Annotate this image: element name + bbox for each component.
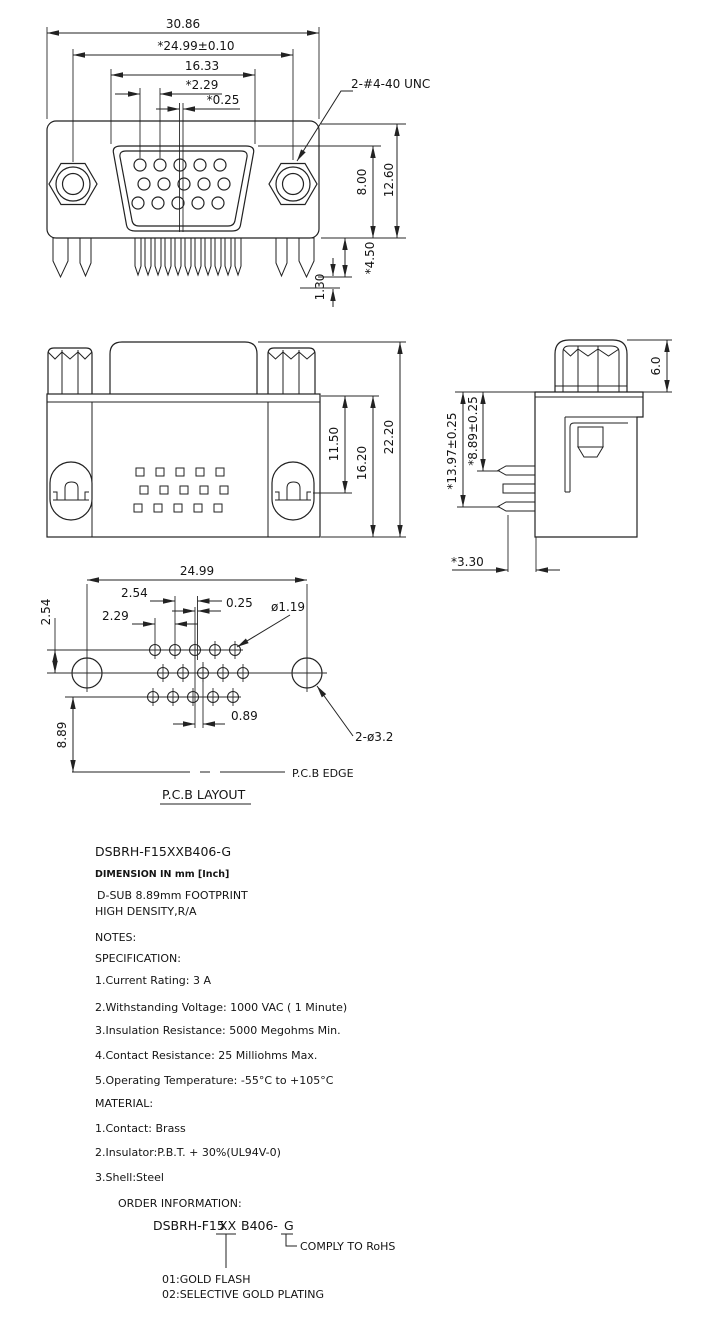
dim-body-height: 16.20: [355, 446, 369, 480]
order-part-suffix: B406-: [241, 1218, 278, 1233]
contact-holes: [132, 159, 230, 209]
dim-footprint-depth: *8.89±0.25: [466, 396, 480, 466]
side-standoff: [555, 340, 627, 392]
dim-pcb-pin-pitch: 2.29: [102, 609, 129, 623]
standoff-left: [48, 348, 92, 394]
solder-pins: [135, 238, 241, 275]
rear-body: [47, 394, 320, 537]
order-part-rohs-code: G: [284, 1218, 294, 1233]
description-line1: D-SUB 8.89mm FOOTPRINT: [97, 889, 248, 902]
dim-pin-length: *4.50: [363, 242, 377, 275]
dim-pcb-col-spacing: 2.54: [121, 586, 148, 600]
bracket-legs: [53, 238, 314, 277]
standoff-right: [268, 348, 315, 394]
front-view: 30.86 *24.99±0.10 16.33 *2.29 *0.25 2-#4…: [47, 17, 430, 307]
spec-line: 1.Current Rating: 3 A: [95, 974, 211, 987]
drawing-sheet: 30.86 *24.99±0.10 16.33 *2.29 *0.25 2-#4…: [0, 0, 705, 1326]
order-part-plating-code: XX: [219, 1218, 237, 1233]
dim-pcb-hole-dia: ø1.19: [271, 600, 305, 614]
pcb-layout: 24.99 2.54 2.54 0.25 2.29 ø1.19 0.89 8.8…: [39, 564, 393, 804]
notes-label: NOTES:: [95, 931, 136, 944]
dim-standoff-height: 6.0: [649, 356, 663, 375]
dimension-note: DIMENSION IN mm [Inch]: [95, 869, 229, 880]
dim-rear-overall-height: 22.20: [382, 420, 396, 454]
spec-line: 4.Contact Resistance: 25 Milliohms Max.: [95, 1049, 317, 1062]
notes-block: DSBRH-F15XXB406-G DIMENSION IN mm [Inch]…: [95, 844, 347, 1184]
rear-view: 11.50 16.20 22.20: [47, 342, 406, 537]
dim-pcb-edge-distance: 8.89: [55, 722, 69, 749]
order-part-prefix: DSBRH-F15: [153, 1218, 225, 1233]
spec-line: 5.Operating Temperature: -55°C to +105°C: [95, 1074, 334, 1087]
spec-line: 3.Insulation Resistance: 5000 Megohms Mi…: [95, 1024, 341, 1037]
dim-pcb-mid-offset: 0.89: [231, 709, 258, 723]
dim-pcb-mount-hole: 2-ø3.2: [355, 730, 393, 744]
dim-total-depth: *13.97±0.25: [445, 412, 459, 489]
thread-callout: 2-#4-40 UNC: [351, 77, 430, 91]
side-pins: [498, 466, 535, 511]
pcb-pin-holes: [148, 641, 249, 706]
d-shroud: [113, 146, 253, 231]
dim-pcb-center-offset: 0.25: [226, 596, 253, 610]
dim-inner-height: 11.50: [327, 427, 341, 461]
order-leader-lines: [216, 1234, 297, 1268]
material-line: 1.Contact: Brass: [95, 1122, 186, 1135]
dim-pcb-mount-span: 24.99: [180, 564, 214, 578]
specification-label: SPECIFICATION:: [95, 952, 181, 965]
dim-pcb-row-spacing: 2.54: [39, 599, 53, 626]
side-view: 6.0 *13.97±0.25 *8.89±0.25 *3.30: [445, 340, 672, 572]
plating-option: 01:GOLD FLASH: [162, 1273, 250, 1286]
pcb-row-lines: [47, 650, 327, 697]
order-info-label: ORDER INFORMATION:: [118, 1197, 242, 1210]
dim-pin-tip: 1.30: [313, 274, 327, 301]
order-info: ORDER INFORMATION: DSBRH-F15 XX B406- G …: [118, 1197, 395, 1301]
dim-mount-span: *24.99±0.10: [157, 39, 234, 53]
description-line2: HIGH DENSITY,R/A: [95, 905, 197, 918]
dim-shroud-width: 16.33: [185, 59, 219, 73]
rohs-note: COMPLY TO RoHS: [300, 1240, 395, 1253]
dim-overall-width: 30.86: [166, 17, 200, 31]
dim-row-offset: *0.25: [207, 93, 240, 107]
side-body: [535, 392, 643, 537]
dim-pin-pitch: *2.29: [186, 78, 219, 92]
front-view-dimension-lines: [47, 33, 397, 307]
dim-shroud-height: 8.00: [355, 169, 369, 196]
pcb-dimension-lines: [55, 580, 353, 772]
material-line: 3.Shell:Steel: [95, 1171, 164, 1184]
dim-overall-height: 12.60: [382, 163, 396, 197]
dim-pin-setback: *3.30: [451, 555, 484, 569]
pcb-edge-label: P.C.B EDGE: [292, 767, 354, 780]
material-label: MATERIAL:: [95, 1097, 153, 1110]
part-number: DSBRH-F15XXB406-G: [95, 844, 231, 859]
pcb-layout-title: P.C.B LAYOUT: [162, 787, 246, 802]
jack-screw-left: [49, 164, 97, 205]
jack-screw-right: [269, 164, 317, 205]
front-view-extension-lines: [47, 27, 406, 288]
spec-line: 2.Withstanding Voltage: 1000 VAC ( 1 Min…: [95, 1001, 347, 1014]
rear-shroud: [110, 342, 257, 394]
plating-option: 02:SELECTIVE GOLD PLATING: [162, 1288, 324, 1301]
material-line: 2.Insulator:P.B.T. + 30%(UL94V-0): [95, 1146, 281, 1159]
